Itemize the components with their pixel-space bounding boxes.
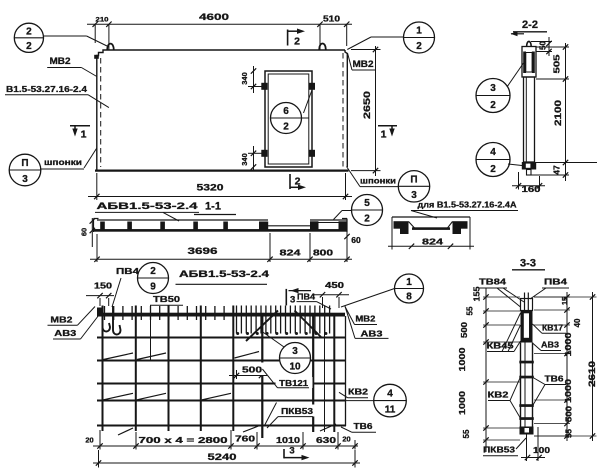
svg-text:2: 2	[416, 41, 422, 52]
svg-text:1: 1	[81, 128, 87, 140]
svg-text:АВ3: АВ3	[54, 328, 76, 338]
svg-text:3: 3	[490, 83, 496, 94]
svg-text:для В1.5-53.27.16-2.4А: для В1.5-53.27.16-2.4А	[418, 200, 517, 210]
svg-text:ПВ4: ПВ4	[297, 291, 315, 301]
svg-text:КВ2: КВ2	[348, 386, 368, 396]
svg-text:В1.5-53.27.16-2.4: В1.5-53.27.16-2.4	[6, 84, 87, 94]
svg-text:ПВ4: ПВ4	[116, 266, 139, 276]
svg-text:3: 3	[289, 446, 294, 457]
svg-text:40: 40	[573, 318, 582, 327]
svg-text:55: 55	[465, 306, 474, 315]
svg-text:КВ2: КВ2	[488, 390, 509, 400]
svg-text:800: 800	[313, 248, 333, 258]
svg-text:ТВ6: ТВ6	[354, 421, 373, 431]
svg-text:160: 160	[522, 184, 541, 194]
svg-text:МВ2: МВ2	[353, 59, 374, 69]
svg-text:3: 3	[290, 294, 295, 305]
svg-text:11: 11	[385, 405, 396, 416]
svg-text:824: 824	[280, 248, 301, 258]
svg-text:340: 340	[240, 153, 249, 166]
svg-text:9: 9	[150, 282, 156, 293]
svg-text:2100: 2100	[553, 100, 564, 126]
svg-text:824: 824	[422, 237, 443, 247]
svg-text:10: 10	[289, 362, 301, 373]
svg-text:20: 20	[85, 436, 93, 445]
svg-text:ТВ6: ТВ6	[545, 374, 564, 384]
svg-text:5320: 5320	[197, 183, 224, 194]
svg-text:П: П	[410, 174, 417, 185]
svg-text:ПВ4: ПВ4	[544, 277, 567, 287]
svg-text:МВ2: МВ2	[355, 314, 375, 324]
svg-text:ПКВ53: ПКВ53	[483, 444, 515, 454]
svg-text:МВ2: МВ2	[50, 56, 71, 66]
svg-text:1-1: 1-1	[205, 201, 221, 213]
svg-text:210: 210	[96, 17, 109, 24]
svg-text:700 x 4 = 2800: 700 x 4 = 2800	[139, 436, 229, 445]
svg-text:3-3: 3-3	[520, 258, 536, 270]
svg-text:340: 340	[240, 72, 249, 85]
svg-text:П: П	[21, 158, 28, 169]
svg-text:760: 760	[235, 435, 256, 444]
svg-text:МВ2: МВ2	[50, 314, 72, 324]
svg-text:55: 55	[564, 429, 573, 438]
svg-text:155: 155	[472, 286, 481, 302]
svg-text:3696: 3696	[188, 246, 218, 256]
svg-text:505: 505	[552, 54, 562, 73]
svg-text:ТВ50: ТВ50	[153, 294, 180, 304]
svg-text:1000: 1000	[457, 347, 467, 371]
svg-text:450: 450	[325, 281, 345, 290]
svg-text:1: 1	[416, 26, 422, 37]
svg-text:ТВ84: ТВ84	[479, 277, 506, 287]
svg-text:1000: 1000	[563, 332, 573, 356]
svg-text:4600: 4600	[199, 12, 229, 23]
svg-text:2-2: 2-2	[522, 19, 538, 31]
svg-text:АВ3: АВ3	[541, 340, 559, 350]
svg-text:2: 2	[295, 175, 301, 187]
svg-text:2: 2	[294, 35, 300, 47]
svg-text:8: 8	[406, 292, 412, 303]
svg-text:4: 4	[387, 388, 393, 399]
svg-text:3: 3	[292, 346, 298, 357]
svg-text:1010: 1010	[276, 436, 301, 445]
svg-text:100: 100	[533, 445, 550, 455]
svg-text:2610: 2610	[587, 361, 598, 387]
svg-text:2650: 2650	[362, 91, 373, 119]
svg-text:2: 2	[283, 122, 289, 133]
svg-text:1: 1	[406, 277, 412, 288]
svg-text:АБВ1.5-53-2.4: АБВ1.5-53-2.4	[179, 269, 270, 280]
svg-text:15: 15	[560, 297, 569, 305]
svg-text:5: 5	[364, 198, 370, 209]
svg-text:ПКВ53: ПКВ53	[281, 406, 313, 416]
svg-text:60: 60	[351, 235, 361, 245]
svg-text:2: 2	[150, 266, 156, 277]
svg-text:20: 20	[342, 435, 350, 444]
svg-text:50: 50	[538, 41, 547, 50]
svg-text:60: 60	[80, 228, 89, 236]
svg-text:2: 2	[490, 164, 496, 175]
svg-text:1: 1	[381, 128, 387, 140]
svg-text:2: 2	[490, 100, 496, 111]
svg-text:4: 4	[490, 147, 496, 158]
svg-text:1000: 1000	[457, 391, 467, 415]
svg-text:47: 47	[552, 165, 562, 175]
svg-text:КВ45: КВ45	[487, 341, 514, 351]
svg-text:2: 2	[26, 26, 32, 37]
svg-text:шпонки: шпонки	[44, 157, 82, 167]
svg-text:55: 55	[462, 429, 471, 438]
svg-text:АБВ1.5-53-2.4: АБВ1.5-53-2.4	[97, 201, 199, 212]
svg-text:3: 3	[411, 190, 417, 201]
svg-text:500: 500	[242, 365, 262, 375]
svg-text:150: 150	[94, 281, 113, 290]
svg-text:500: 500	[460, 321, 469, 338]
svg-text:5240: 5240	[208, 452, 237, 463]
svg-text:500: 500	[564, 405, 573, 422]
svg-text:2: 2	[26, 41, 32, 52]
svg-text:630: 630	[316, 436, 337, 445]
svg-text:1000: 1000	[563, 379, 573, 403]
svg-text:2: 2	[364, 214, 370, 225]
svg-text:КВ17: КВ17	[542, 323, 563, 333]
svg-text:шпонки: шпонки	[360, 176, 396, 186]
svg-text:ТВ121: ТВ121	[279, 378, 308, 388]
svg-text:510: 510	[323, 15, 341, 24]
svg-text:3: 3	[22, 174, 28, 185]
svg-text:6: 6	[283, 106, 289, 117]
svg-text:АВ3: АВ3	[361, 328, 383, 338]
